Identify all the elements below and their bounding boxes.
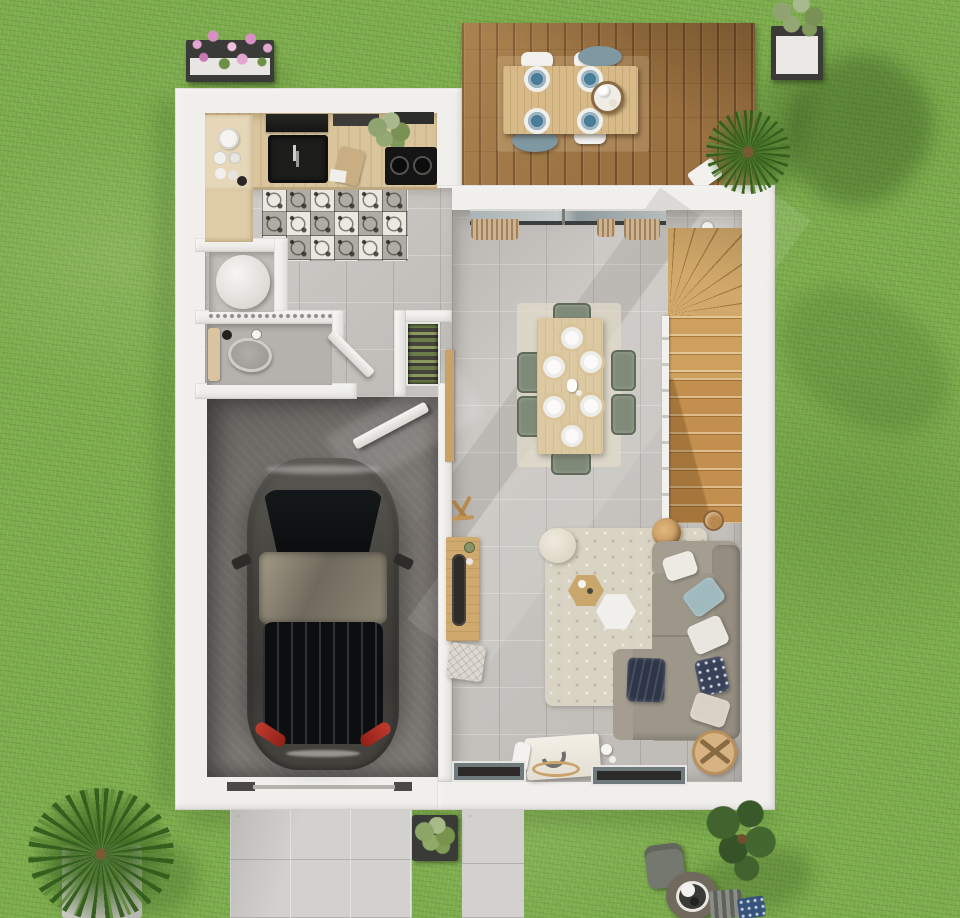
- deck-palm: [706, 110, 790, 194]
- sink-faucet: [293, 145, 296, 161]
- dining-chair-bottom: [551, 451, 591, 475]
- palm-bush: [28, 788, 174, 918]
- window-sill-right: [591, 765, 687, 786]
- toilet-paper: [252, 330, 261, 339]
- stairs-banister: [662, 316, 669, 522]
- dish-plate: [213, 151, 227, 165]
- burner: [390, 156, 409, 175]
- driveway: [230, 810, 412, 918]
- navy-blanket: [626, 657, 666, 702]
- dinner-plate: [558, 324, 586, 352]
- stairs-lower-flight: [668, 378, 742, 523]
- floorplan-render: [0, 0, 960, 918]
- dish-bowl: [229, 152, 241, 164]
- garage-door-rail-left: [227, 782, 255, 791]
- shadow-grass-right: [757, 261, 960, 460]
- candle: [578, 580, 586, 588]
- window-sill-left: [452, 761, 526, 782]
- dinner-plate: [558, 422, 586, 450]
- jug: [598, 85, 611, 98]
- fire-pit-jug: [681, 883, 695, 897]
- deck-chair-teal: [578, 46, 622, 67]
- white-vase-small: [609, 756, 616, 763]
- candle-dark: [587, 588, 593, 594]
- white-vase: [601, 744, 612, 755]
- water-heater: [216, 255, 270, 309]
- car-trunk-glint: [286, 750, 360, 757]
- curtain-right-small: [597, 219, 615, 237]
- blue-plate: [524, 66, 550, 92]
- wc-door-leaf-left: [208, 328, 220, 381]
- range-hood: [266, 114, 328, 132]
- blue-plate: [524, 108, 550, 134]
- stairs-winder: [668, 228, 742, 316]
- cup: [609, 99, 617, 107]
- garage-threshold: [253, 785, 395, 789]
- coffee-maker: [237, 176, 247, 186]
- curtain-right: [624, 219, 660, 240]
- car-cabin-glass: [259, 552, 387, 624]
- tree-trunk: [737, 834, 747, 844]
- table-cup: [576, 390, 582, 396]
- planter-foliage: [766, 0, 830, 44]
- kitchen-sink: [268, 135, 328, 183]
- table-jug: [567, 379, 577, 392]
- kitchen-cabinet-lower: [205, 190, 253, 242]
- curtain-left: [471, 219, 519, 240]
- sideboard-tray: [452, 554, 466, 626]
- dining-chair-right: [611, 394, 636, 435]
- dinner-plate: [577, 392, 605, 420]
- woven-pouf: [446, 642, 487, 683]
- threshold-grille: [208, 312, 340, 321]
- desk-tray: [532, 761, 580, 777]
- closet-interior: [406, 322, 440, 386]
- dinner-plate: [577, 348, 605, 376]
- round-pouf: [539, 528, 576, 563]
- counter-front-edge: [253, 187, 437, 190]
- burner: [413, 156, 432, 175]
- square-planter-plant: [414, 817, 456, 859]
- wall-closet-left: [394, 310, 406, 397]
- kitchen-towel: [329, 169, 347, 183]
- slim-cabinet: [445, 350, 454, 462]
- wc-bin: [222, 330, 232, 340]
- blue-cushion: [737, 895, 767, 918]
- dining-chair-right: [611, 350, 636, 391]
- dinner-plate: [540, 393, 568, 421]
- car-windshield: [263, 490, 383, 554]
- sliding-door-divider: [562, 209, 565, 225]
- car-roof-rear: [263, 622, 383, 744]
- garage-door-rail-right: [394, 782, 412, 791]
- dish-bowl: [215, 168, 226, 179]
- stairs-newel-post: [703, 510, 724, 531]
- stairs-mid-flight: [668, 316, 742, 378]
- dinner-plate: [540, 353, 568, 381]
- dish-plate: [218, 128, 239, 149]
- car-hood-glint: [266, 465, 380, 474]
- fire-pit-hole: [690, 897, 699, 906]
- pink-flowers: [183, 26, 277, 72]
- sideboard-plant: [464, 542, 475, 553]
- sideboard-cup: [466, 558, 473, 565]
- wall-garage-top: [195, 383, 357, 399]
- entry-path: [462, 810, 524, 918]
